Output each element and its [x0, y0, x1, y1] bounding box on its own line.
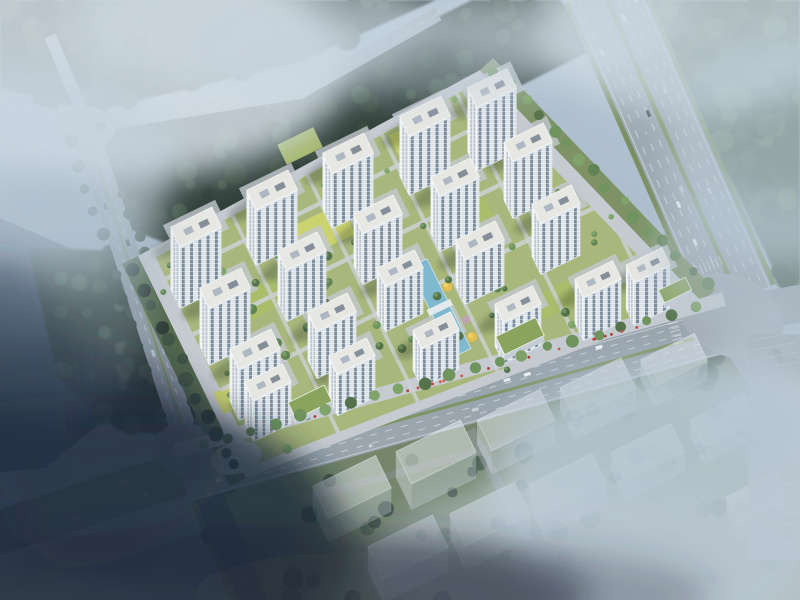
render-canvas: Residential Community Aerial Rendering	[0, 0, 800, 600]
aerial-scene: Residential Community Aerial Rendering	[0, 0, 800, 600]
